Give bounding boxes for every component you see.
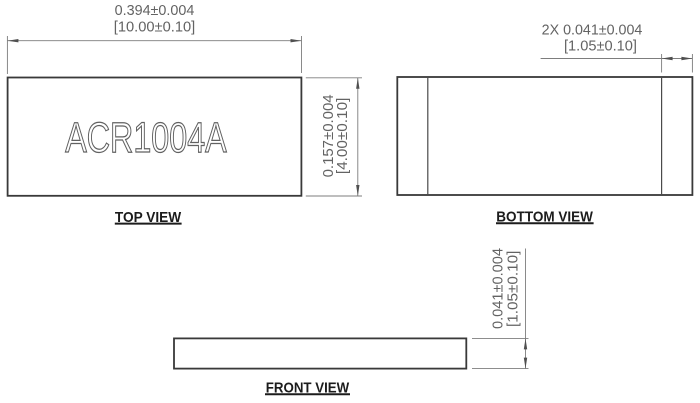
svg-text:ACR1004A: ACR1004A [65, 114, 227, 162]
svg-text:0.394±0.004: 0.394±0.004 [115, 3, 195, 19]
svg-text:0.041±0.004: 0.041±0.004 [491, 248, 507, 329]
svg-text:2X 0.041±0.004: 2X 0.041±0.004 [542, 23, 643, 39]
svg-text:[10.00±0.10]: [10.00±0.10] [114, 20, 196, 36]
svg-text:[4.00±0.10]: [4.00±0.10] [335, 98, 351, 175]
svg-text:[1.05±0.10]: [1.05±0.10] [506, 251, 522, 328]
svg-text:[1.05±0.10]: [1.05±0.10] [564, 38, 637, 54]
